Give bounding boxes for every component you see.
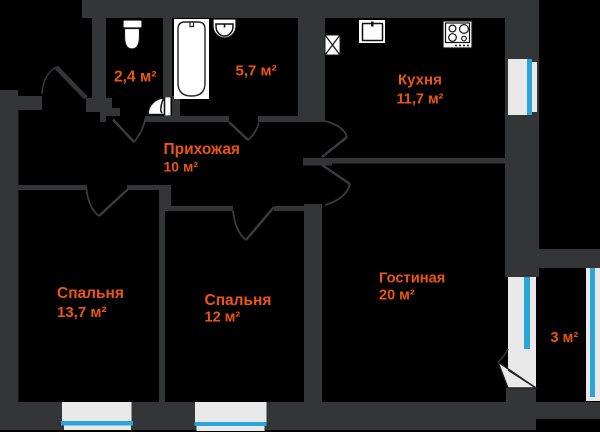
svg-text:3 м²: 3 м² bbox=[551, 330, 579, 346]
svg-text:13,7 м²: 13,7 м² bbox=[57, 304, 106, 321]
svg-text:5,7 м²: 5,7 м² bbox=[236, 63, 277, 80]
svg-text:Спальня: Спальня bbox=[205, 292, 272, 309]
svg-text:20 м²: 20 м² bbox=[379, 288, 415, 304]
svg-text:Прихожая: Прихожая bbox=[164, 141, 240, 158]
svg-text:12 м²: 12 м² bbox=[205, 310, 241, 326]
svg-text:Спальня: Спальня bbox=[57, 285, 124, 302]
svg-text:Кухня: Кухня bbox=[398, 72, 442, 89]
svg-text:Гостиная: Гостиная bbox=[379, 270, 445, 286]
svg-text:10 м²: 10 м² bbox=[164, 159, 199, 175]
svg-text:11,7 м²: 11,7 м² bbox=[397, 92, 444, 108]
svg-text:2,4 м²: 2,4 м² bbox=[114, 69, 156, 86]
